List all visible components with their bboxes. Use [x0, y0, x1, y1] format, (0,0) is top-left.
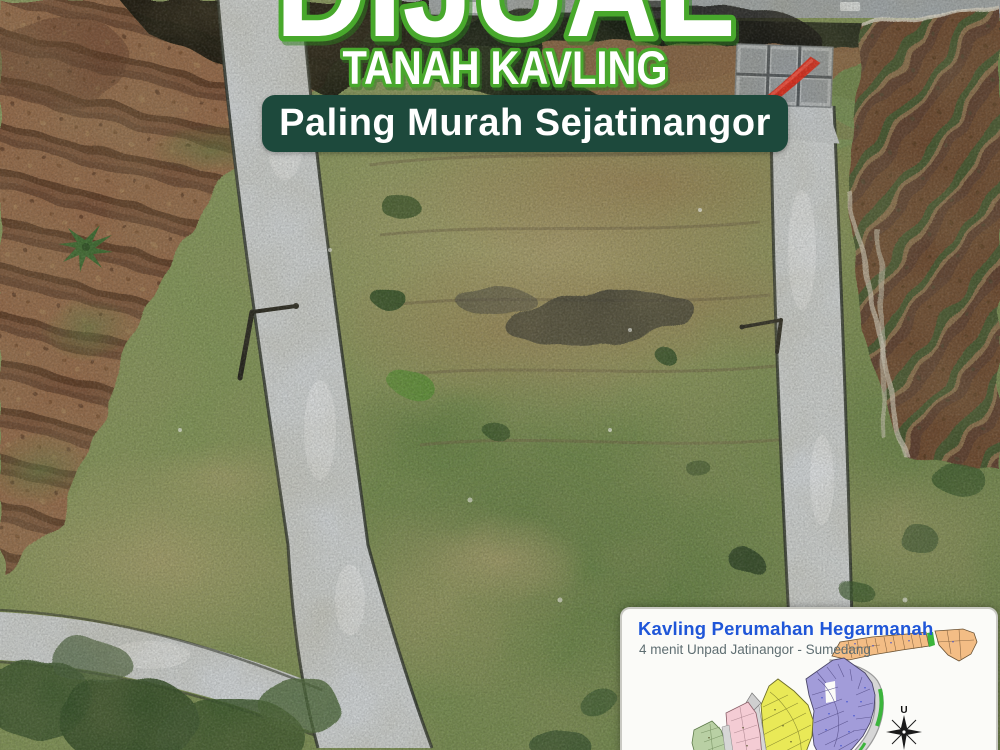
plot-cluster-yellow	[761, 679, 813, 750]
promo-banner: Paling Murah Sejatinangor	[262, 95, 788, 152]
inset-map-title: Kavling Perumahan Hegarmanah	[638, 618, 934, 640]
inset-map-subtitle: 4 menit Unpad Jatinangor - Sumedang	[639, 642, 871, 657]
promo-banner-label: Paling Murah Sejatinangor	[279, 102, 771, 145]
inset-map-card: U Kavling Perumahan Hegarmanah 4 menit U…	[620, 607, 998, 750]
compass-label: U	[900, 705, 907, 716]
plot-cluster-green	[692, 721, 735, 750]
poster-canvas: DIJUAL DIJUAL TANAH KAVLING TANAH KAVLIN…	[0, 0, 1000, 750]
compass-icon: U	[886, 705, 922, 750]
